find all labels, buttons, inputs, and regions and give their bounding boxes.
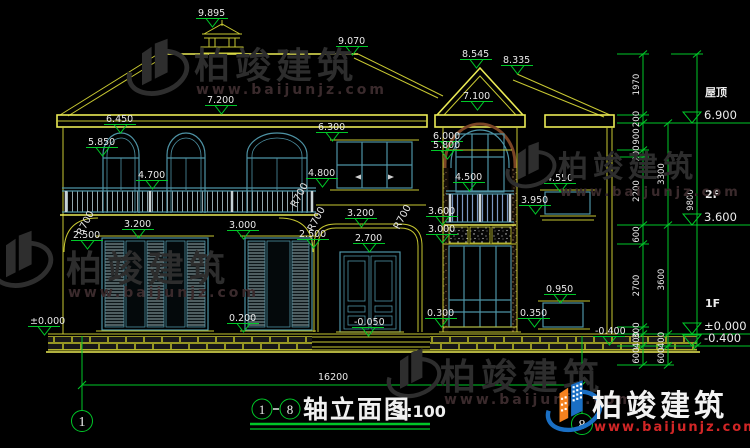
elevation-marker: 6.450	[104, 114, 136, 133]
elevation-marker: 0.200	[227, 313, 259, 332]
elevation-value: 5.800	[433, 140, 460, 151]
chain-dim-value: 1970	[632, 74, 642, 96]
chain-dim-value: 900	[632, 128, 642, 144]
elevation-value: 8.545	[462, 49, 489, 60]
title-axis-from: 1	[259, 402, 266, 417]
elevation-value: 7.100	[463, 91, 490, 102]
title-block: 1 8 轴立面图 1:100	[250, 395, 446, 429]
elevation-marker: ±0.000	[28, 316, 65, 335]
elevation-marker: 0.950	[544, 284, 576, 303]
elevation-value: 9.895	[198, 8, 225, 19]
elevation-value: 3.200	[347, 208, 374, 219]
elevation-value: 5.850	[88, 137, 115, 148]
elevation-marker: 3.950	[519, 195, 551, 214]
elevation-value: 2.700	[355, 233, 382, 244]
cad-elevation-screenshot: 9.8959.0707.2006.4505.8504.7003.2003.000…	[0, 0, 750, 448]
elevation-value: 6.450	[106, 114, 133, 125]
elevation-value: 0.300	[427, 308, 454, 319]
elevation-marker: 0.300	[425, 308, 457, 327]
entrance-porch	[314, 205, 426, 332]
brand-name: 柏竣建筑	[194, 46, 358, 87]
brand-watermark-dark: 柏竣建筑www.baijunjz.com	[124, 39, 387, 101]
elevation-value: -0.050	[354, 317, 385, 328]
floor-elevation: -0.400	[704, 331, 741, 345]
chain-dim-value: 200	[632, 111, 642, 127]
elevation-value: 0.350	[520, 308, 547, 319]
brand-watermark-color: 柏竣建筑www.baijunjz.com	[543, 380, 750, 436]
floor-level-marker: 1F±0.000	[656, 297, 750, 334]
window-2f-middle	[330, 140, 419, 190]
elevation-marker: 4.500	[453, 172, 485, 191]
elevation-marker: 8.545	[460, 49, 492, 68]
floor-elevation: 3.600	[704, 210, 737, 224]
entrance-steps	[304, 337, 438, 347]
elevation-marker: -0.050	[352, 317, 385, 336]
elevation-value: 3.600	[428, 206, 455, 217]
brand-url: www.baijunjz.com	[594, 420, 750, 435]
balcony-railing	[60, 188, 318, 215]
floor-elevation: 6.900	[704, 108, 737, 122]
brand-logo-icon	[124, 39, 193, 101]
floor-name: 屋顶	[705, 86, 727, 99]
elevation-value: 4.700	[138, 170, 165, 181]
brand-url: www.baijunjz.com	[560, 185, 741, 200]
axis-number: 1	[79, 415, 86, 430]
elevation-value: 4.500	[455, 172, 482, 183]
floor-level-markers: 屋顶6.9002F3.6001F±0.000-0.400	[656, 86, 750, 346]
brand-name: 柏竣建筑	[592, 389, 728, 424]
brand-url: www.baijunjz.com	[68, 285, 259, 301]
elevation-value: ±0.000	[30, 316, 65, 327]
chain-dim-value: 2700	[632, 275, 642, 297]
chain-dim-value: 3600	[657, 269, 667, 291]
tower	[435, 68, 525, 332]
drawing-scale: 1:100	[395, 402, 446, 421]
elevation-marker: 4.800	[306, 168, 338, 187]
elevation-value: 3.200	[124, 219, 151, 230]
radius-label: R700	[392, 203, 414, 231]
elevation-marker: 8.335	[501, 55, 533, 74]
elevation-value: 3.000	[428, 224, 455, 235]
floor-name: 1F	[705, 297, 720, 310]
elevation-value: 4.800	[308, 168, 335, 179]
floor-level-marker: 屋顶6.900	[656, 86, 750, 123]
elevation-marker: 0.350	[518, 308, 550, 327]
elevation-value: 3.000	[229, 220, 256, 231]
chain-dim-value: 600	[657, 347, 667, 363]
elevation-marker: 2.700	[353, 233, 385, 252]
brand-name: 柏竣建筑	[558, 150, 698, 185]
elevation-marker: 5.850	[86, 137, 118, 156]
elevation-value: 0.950	[546, 284, 573, 295]
axis-bubble: 1	[72, 411, 93, 432]
elevation-marker: 6.300	[316, 122, 348, 141]
elevation-value: 6.300	[318, 122, 345, 133]
brand-logo-icon	[0, 231, 56, 293]
dimension-chains: 1970200900200220060027003004006003300360…	[632, 51, 701, 369]
elevation-marker: 7.100	[461, 91, 493, 110]
chain-dim-value: 400	[632, 332, 642, 348]
elevation-value: 3.950	[521, 195, 548, 206]
chain-dim-value: 600	[632, 347, 642, 363]
elevation-drawing: 9.8959.0707.2006.4505.8504.7003.2003.000…	[0, 0, 750, 448]
dimension-chain: 197020090020022006002700300400600	[632, 51, 647, 369]
chain-dim-value: 600	[632, 226, 642, 242]
elevation-value: -0.400	[595, 326, 626, 337]
elevation-marker: 4.700	[136, 170, 168, 189]
dimension-chain: 9800	[686, 51, 701, 350]
elevation-marker: 3.200	[122, 219, 154, 238]
elevation-value: 8.335	[503, 55, 530, 66]
chain-dim-value: 400	[657, 332, 667, 348]
overall-dim-text: 16200	[318, 372, 348, 383]
brand-url: www.baijunjz.com	[196, 82, 387, 98]
title-axis-to: 8	[287, 402, 294, 417]
elevation-value: 0.200	[229, 313, 256, 324]
brand-name: 柏竣建筑	[66, 249, 230, 290]
brand-watermark-dark: 柏竣建筑www.baijunjz.com	[503, 142, 741, 200]
